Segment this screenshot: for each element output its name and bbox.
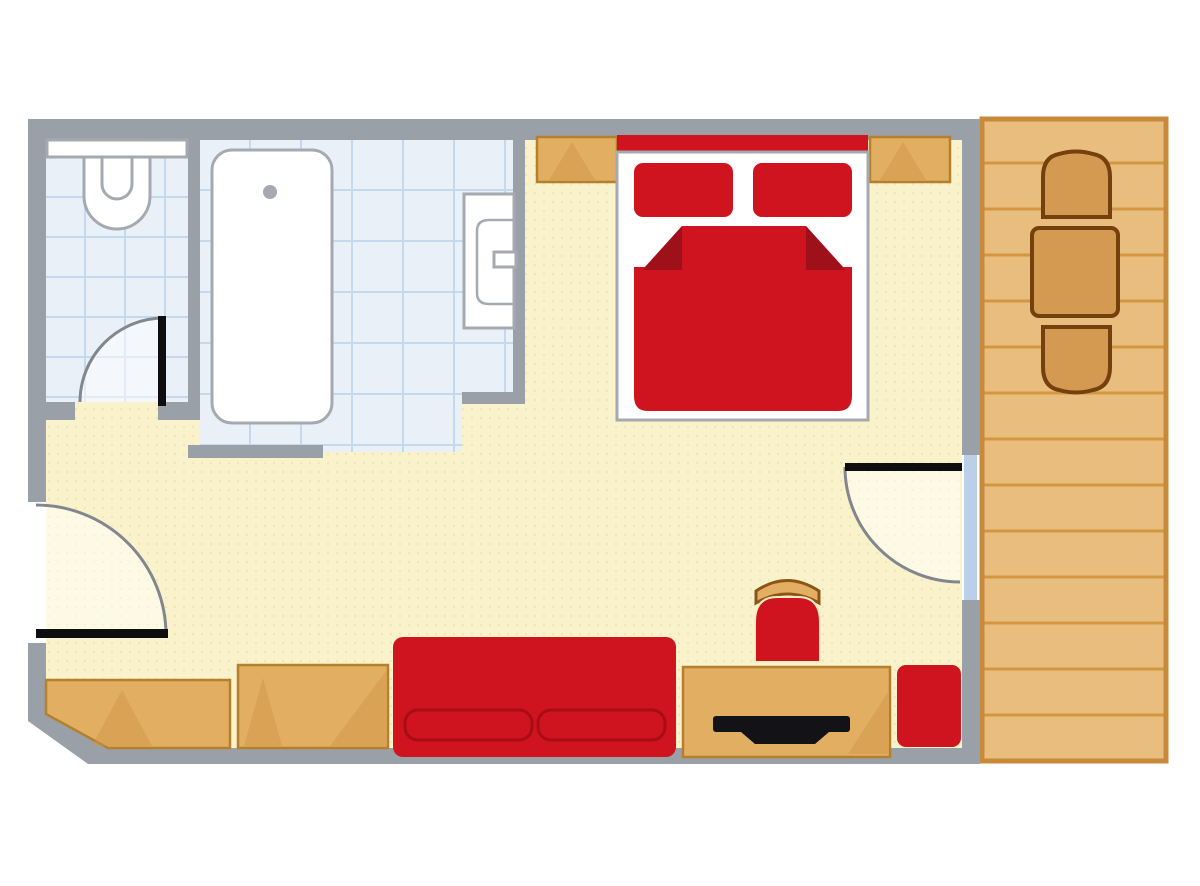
tv-stand	[741, 732, 829, 744]
wall-left-lower	[28, 643, 46, 713]
bed-headboard	[617, 135, 868, 152]
wall-wc-bottom-left-stub	[46, 402, 75, 420]
toilet-bowl-inner	[102, 157, 132, 199]
pillow-left	[634, 163, 733, 217]
wc-shelf	[47, 140, 187, 157]
wall-left-upper	[28, 140, 46, 502]
wall-bath-return	[462, 392, 525, 404]
sofa-cushion-left	[405, 710, 532, 740]
pillow-right	[753, 163, 852, 217]
bathtub-drain	[263, 185, 277, 199]
floor-plan	[0, 0, 1200, 886]
terrace-door-leaf	[845, 463, 962, 471]
terrace-window-glass	[964, 455, 977, 600]
terrace	[980, 117, 1168, 763]
wall-wc-bath-partition	[188, 140, 200, 420]
floor-plan-page	[0, 0, 1200, 886]
wall-bath-bottom	[188, 445, 323, 458]
desk-chair-seat	[755, 597, 820, 662]
blanket	[634, 267, 852, 411]
terrace-table	[1032, 228, 1118, 316]
sofa-cushion-right	[538, 710, 665, 740]
wall-right-upper	[962, 140, 980, 455]
sink-tap	[494, 252, 516, 267]
entry-door-leaf	[36, 629, 168, 638]
armchair	[897, 665, 961, 747]
terrace-chair-bottom	[1043, 327, 1110, 393]
terrace-chair-top	[1043, 152, 1110, 218]
tv-screen	[713, 716, 850, 732]
wc-door-leaf	[158, 316, 166, 406]
wall-right-lower	[962, 600, 980, 757]
